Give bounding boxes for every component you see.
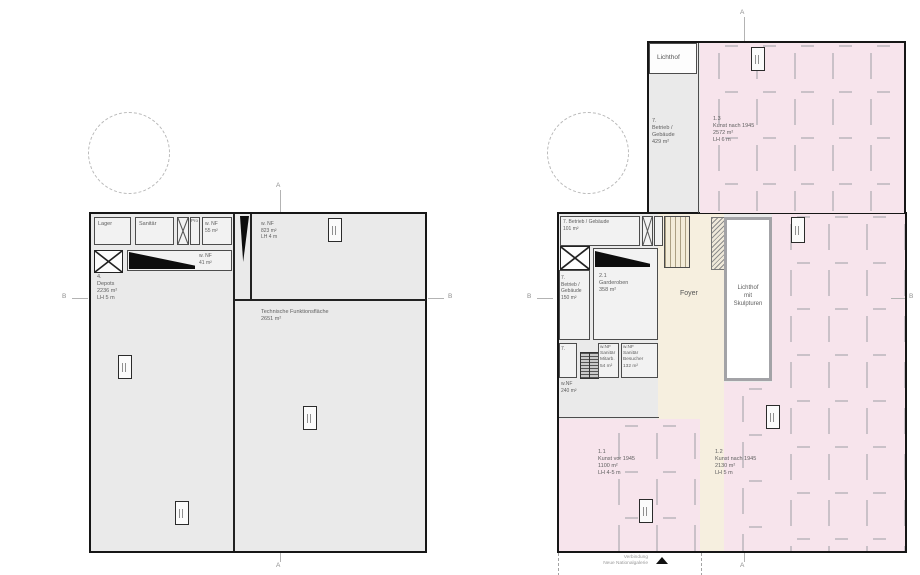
section-marker-a-bottom-right-plan: A — [740, 562, 744, 569]
room-shaft-small-4 — [654, 216, 663, 246]
room-betrieb429-label: 7. Betrieb / Gebäude 429 m² — [652, 118, 675, 147]
shaft-xbox — [560, 246, 590, 270]
elevator-icon — [303, 406, 317, 430]
room-kunst13-label: 1.3 Kunst nach 1945 2572 m² LH 6 m — [713, 116, 754, 145]
room-garderoben-label: 2.1 Garderoben 358 m² — [599, 273, 628, 294]
section-line — [744, 553, 745, 562]
section-line — [744, 17, 745, 41]
connection-arrow-icon — [656, 557, 668, 564]
elevator-icon — [751, 47, 765, 71]
room-lichthof-label: Lichthof — [657, 54, 680, 62]
verbindung-label: Verbindung Neue Nationalgalerie — [574, 555, 648, 567]
elevator-icon — [639, 499, 653, 523]
room-shaft-small-3 — [642, 216, 653, 246]
section-marker-a-bottom-left-plan: A — [276, 562, 280, 569]
room-shaft-small-1 — [177, 217, 189, 245]
escalator-hatch — [711, 217, 725, 270]
elevator-icon — [118, 355, 132, 379]
section-line — [72, 298, 88, 299]
room-nf55-label: w. NF 55 m² — [205, 221, 218, 234]
room-technik-label: Technische Funktionsfläche 2651 m² — [261, 309, 329, 323]
room-sanitaer-mitarb-label: w.NF Sanitär Mitarb. 54 m² — [600, 345, 615, 370]
elevator-icon — [791, 217, 805, 243]
section-line — [280, 190, 281, 212]
section-marker-a-top-right-plan: A — [740, 9, 744, 16]
room-betrieb101-label: 7. Betrieb / Gebäude 101 m² — [563, 219, 609, 232]
room-sieben-label: 7. — [561, 346, 565, 353]
section-line — [891, 298, 905, 299]
section-marker-b-left: B — [62, 293, 66, 300]
wall-lichthof-column — [698, 43, 699, 213]
section-line — [537, 298, 553, 299]
room-nf823-label: w. NF 823 m² LH 4 m — [261, 221, 277, 241]
room-foyer-label: Foyer — [680, 289, 698, 298]
section-marker-b-left-right-plan: B — [527, 293, 531, 300]
room-betrieb150-label: 7. Betrieb / Gebäude 150 m² — [561, 275, 582, 301]
floor-plan-sheet: Lager Sanitär Pro w. NF 55 m² w. NF 823 … — [0, 0, 920, 575]
wall-horizontal-mid — [233, 299, 426, 301]
room-sanitaer-besucher-label: w.NF Sanitär Besucher 132 m² — [623, 345, 643, 370]
wall-vertical-main — [233, 214, 235, 551]
gallery-partition-grid — [772, 214, 905, 551]
room-depots-label: 4. Depots 2236 m² LH 5 m — [97, 274, 117, 303]
cross-hatch-icon — [561, 247, 589, 269]
elevator-icon — [175, 501, 189, 525]
section-line — [428, 298, 444, 299]
room-lager-label: Lager — [98, 221, 112, 228]
cross-hatch-icon — [95, 251, 122, 272]
section-marker-a-top-left-plan: A — [276, 182, 280, 189]
section-line — [280, 553, 281, 562]
dashed-circle-left — [88, 112, 170, 194]
shaft-xbox — [94, 250, 123, 273]
room-pro-label: Pro — [191, 218, 198, 224]
section-marker-b-right-left-plan: B — [448, 293, 452, 300]
section-marker-b-right-right-plan: B — [909, 293, 913, 300]
room-nf240-label: w.NF 240 m² — [561, 381, 577, 394]
wall-horizontal-service — [559, 417, 659, 418]
room-kunst11-label: 1.1 Kunst vor 1945 1100 m² LH 4-5 m — [598, 449, 635, 478]
dashed-circle-right — [547, 112, 629, 194]
cross-hatch-icon — [643, 217, 652, 245]
room-sanitaer-label: Sanitär — [139, 221, 156, 228]
room-kunst12-label: 1.2 Kunst nach 1945 2130 m² LH 5 m — [715, 449, 756, 478]
cross-hatch-icon — [178, 218, 188, 244]
room-nf41-label: w. NF 41 m² — [199, 253, 212, 266]
elevator-icon — [766, 405, 780, 429]
stair-hatch — [664, 216, 690, 268]
room-lichthof-skulpturen-label: Lichthof mit Skulpturen — [724, 285, 772, 308]
wall-vertical-corridor — [250, 214, 252, 300]
elevator-icon — [328, 218, 342, 242]
gallery-partition-grid — [600, 423, 700, 551]
